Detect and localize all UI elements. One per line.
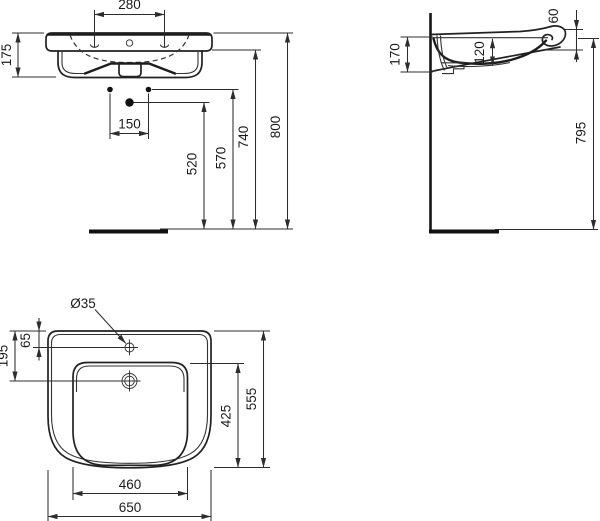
dim-label-60: 60 — [546, 8, 561, 23]
dim-label-460: 460 — [119, 477, 142, 492]
dim-label-570: 570 — [214, 147, 229, 170]
dim-label-65: 65 — [18, 333, 33, 348]
dim-label-150: 150 — [118, 117, 141, 132]
technical-drawing-canvas: 280 175 150 520 570 — [0, 0, 600, 521]
mounting-dot-left — [107, 87, 113, 93]
dim-label-120: 120 — [472, 41, 487, 64]
outlet-dot — [125, 98, 133, 106]
dim-label-425: 425 — [219, 405, 234, 428]
dim-label-175: 175 — [0, 44, 14, 67]
dim-label-195: 195 — [0, 345, 11, 368]
dim-label-800: 800 — [268, 116, 283, 139]
dim-label-170: 170 — [388, 43, 403, 66]
dim-label-280: 280 — [118, 0, 141, 12]
dim-label-diameter: Ø35 — [70, 296, 96, 311]
drawing-svg: 280 175 150 520 570 — [0, 0, 600, 521]
dim-label-795: 795 — [574, 122, 589, 145]
dim-label-555: 555 — [244, 388, 259, 411]
dim-label-740: 740 — [236, 126, 251, 149]
dim-label-520: 520 — [185, 153, 200, 176]
dim-label-650: 650 — [119, 500, 142, 515]
mounting-dot-right — [146, 87, 152, 93]
